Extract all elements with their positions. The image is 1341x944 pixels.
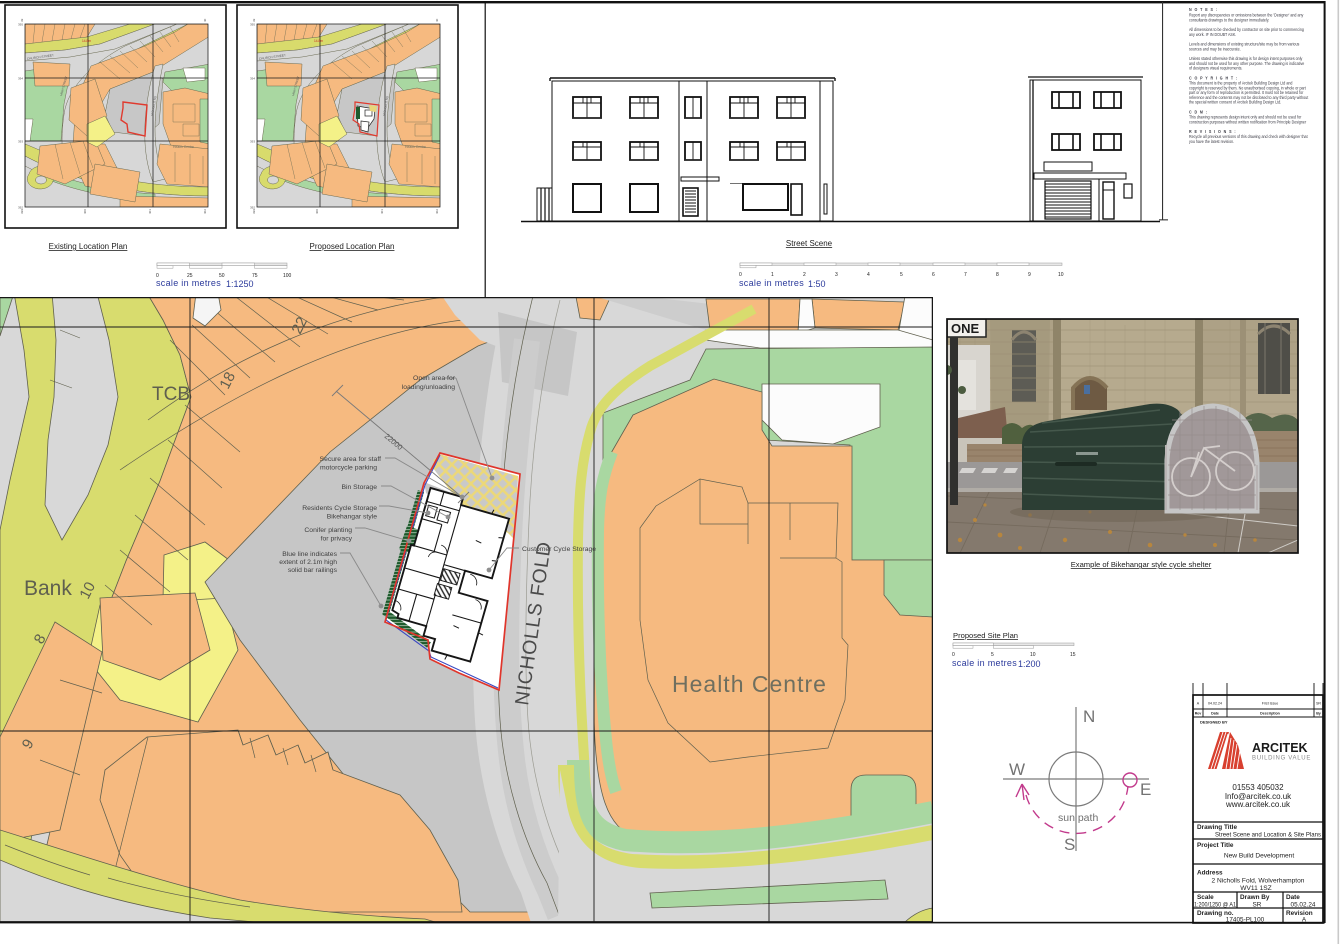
svg-text:construction purposes without: construction purposes without written no… [1189, 119, 1307, 124]
svg-text:scale in metres: scale in metres [952, 658, 1017, 668]
svg-text:SR: SR [1253, 902, 1262, 909]
svg-text:8: 8 [996, 272, 999, 278]
svg-text:Street Scene and Location & Si: Street Scene and Location & Site Plans [1215, 832, 1322, 839]
svg-text:Proposed Site Plan: Proposed Site Plan [953, 631, 1018, 640]
svg-text:TCB: TCB [152, 384, 190, 405]
svg-text:Address: Address [1197, 870, 1223, 877]
svg-text:Secure area for staff: Secure area for staff [320, 456, 382, 463]
svg-text:extent of 2.1m high: extent of 2.1m high [279, 559, 337, 566]
svg-text:Description: Description [1260, 712, 1280, 716]
svg-text:any work. IF IN DOUBT ASK.: any work. IF IN DOUBT ASK. [1189, 31, 1236, 36]
svg-text:www.arcitek.co.uk: www.arcitek.co.uk [1225, 800, 1291, 809]
svg-text:Scale: Scale [1197, 894, 1214, 901]
svg-text:10: 10 [1030, 652, 1036, 658]
svg-text:1:1250: 1:1250 [226, 279, 254, 289]
svg-text:loading/unloading: loading/unloading [402, 384, 456, 391]
svg-text:scale in metres: scale in metres [156, 278, 221, 288]
svg-text:Blue line indicates: Blue line indicates [282, 551, 337, 558]
svg-text:motorcycle parking: motorcycle parking [320, 465, 377, 472]
svg-text:2 Nicholls Fold, Wolverhampton: 2 Nicholls Fold, Wolverhampton [1212, 878, 1305, 885]
svg-text:1:50: 1:50 [808, 279, 826, 289]
svg-text:ONE: ONE [951, 321, 980, 336]
svg-text:of designers visual requiremen: of designers visual requirements. [1189, 65, 1242, 70]
svg-text:Drawing Title: Drawing Title [1197, 824, 1237, 831]
svg-text:the special written consent of: the special written consent of Arcitek B… [1189, 99, 1281, 104]
svg-text:Conifer planting: Conifer planting [304, 527, 352, 534]
svg-text:Open area for: Open area for [413, 375, 456, 382]
svg-text:S: S [1064, 835, 1075, 854]
svg-text:Residents Cycle Storage: Residents Cycle Storage [302, 505, 377, 512]
svg-text:N: N [1083, 707, 1095, 726]
svg-text:Rev: Rev [1195, 712, 1202, 716]
svg-text:4: 4 [867, 272, 870, 278]
svg-text:scale in metres: scale in metres [739, 278, 804, 288]
svg-text:E: E [1140, 780, 1151, 799]
svg-text:for privacy: for privacy [321, 536, 353, 543]
svg-text:Date: Date [1211, 712, 1219, 716]
svg-text:10: 10 [1058, 272, 1064, 278]
svg-text:Example of Bikehangar style cy: Example of Bikehangar style cycle shelte… [1071, 560, 1212, 569]
svg-text:New Build Development: New Build Development [1224, 853, 1295, 860]
svg-text:DESIGNED BY: DESIGNED BY [1200, 720, 1228, 725]
svg-text:W: W [1009, 760, 1025, 779]
svg-text:BUILDING VALUE: BUILDING VALUE [1252, 756, 1311, 762]
svg-text:Proposed Location Plan: Proposed Location Plan [310, 242, 395, 251]
svg-text:Bin Storage: Bin Storage [341, 484, 377, 491]
svg-text:Revision: Revision [1286, 910, 1313, 917]
svg-text:1:200: 1:200 [1018, 659, 1041, 669]
svg-text:15: 15 [1070, 652, 1076, 658]
svg-text:Existing Location Plan: Existing Location Plan [49, 242, 128, 251]
svg-text:7: 7 [964, 272, 967, 278]
svg-text:Street Scene: Street Scene [786, 239, 833, 248]
svg-text:By: By [1316, 712, 1321, 716]
svg-text:05.02.24: 05.02.24 [1291, 902, 1316, 909]
svg-text:First Issue: First Issue [1262, 702, 1279, 706]
svg-text:WV11 1SZ: WV11 1SZ [1240, 885, 1271, 892]
svg-text:sources and may be inaccurate.: sources and may be inaccurate. [1189, 46, 1241, 51]
svg-text:Health Centre: Health Centre [672, 671, 827, 697]
svg-text:Date: Date [1286, 894, 1300, 901]
svg-text:04.02.24: 04.02.24 [1208, 702, 1222, 706]
svg-text:Bank: Bank [24, 577, 72, 600]
svg-text:3: 3 [835, 272, 838, 278]
svg-text:SR: SR [1316, 702, 1321, 706]
svg-text:solid bar railings: solid bar railings [288, 567, 338, 574]
svg-text:Project Title: Project Title [1197, 842, 1234, 849]
svg-text:5: 5 [900, 272, 903, 278]
svg-text:6: 6 [932, 272, 935, 278]
svg-text:9: 9 [1028, 272, 1031, 278]
svg-text:01553 405032: 01553 405032 [1232, 783, 1284, 792]
svg-text:consultants drawings to the de: consultants drawings to the designer imm… [1189, 17, 1269, 22]
svg-text:Drawn By: Drawn By [1240, 894, 1270, 901]
svg-text:1:200/1250 @ A1: 1:200/1250 @ A1 [1194, 902, 1236, 909]
svg-text:sun path: sun path [1058, 812, 1098, 824]
svg-text:you have the latest revision.: you have the latest revision. [1189, 138, 1234, 143]
svg-text:100: 100 [283, 273, 292, 279]
svg-text:Bikehangar style: Bikehangar style [327, 514, 377, 521]
svg-text:ARCITEK: ARCITEK [1252, 741, 1308, 755]
